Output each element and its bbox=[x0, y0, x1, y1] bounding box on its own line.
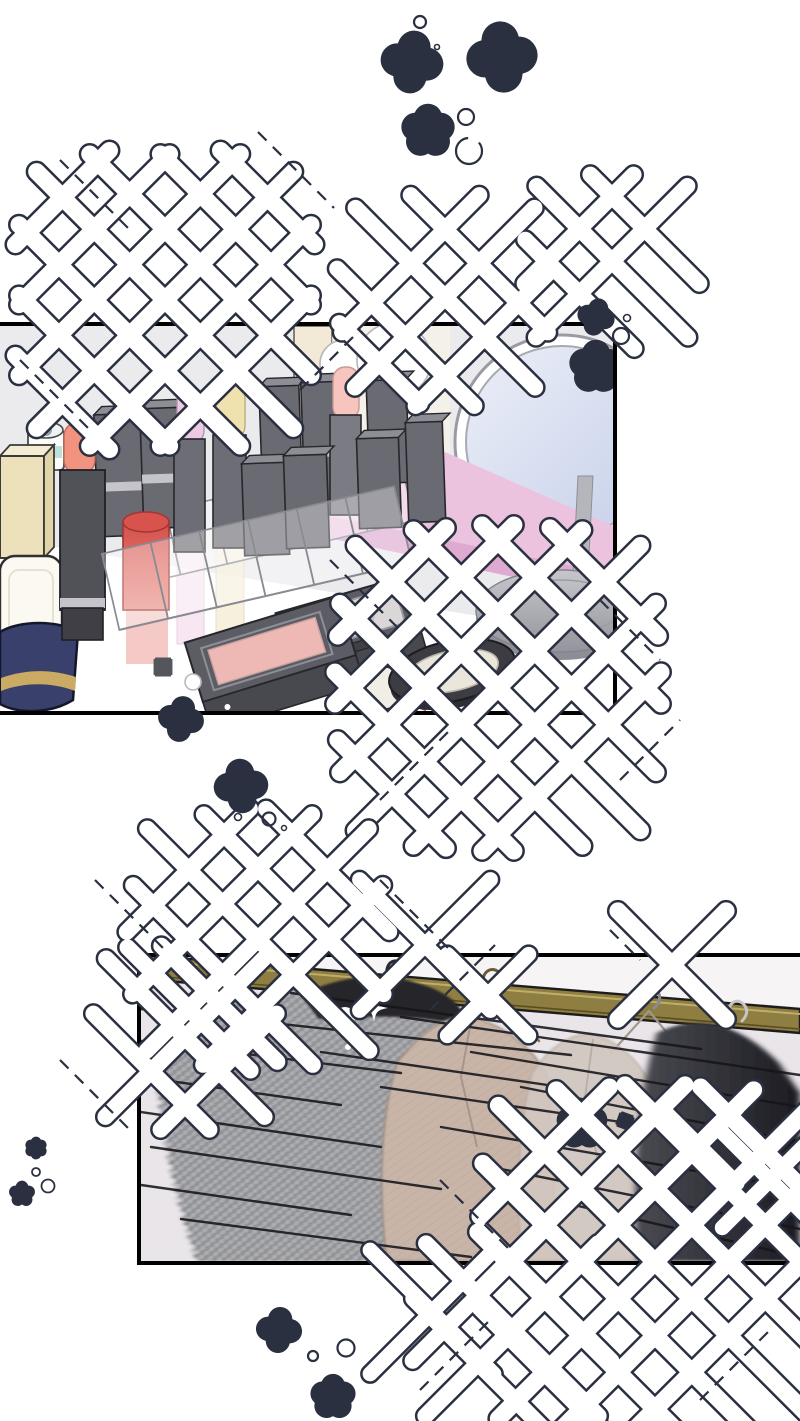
panel-vanity bbox=[0, 322, 617, 715]
vanity-scene bbox=[0, 326, 613, 711]
panel-closet bbox=[137, 953, 800, 1265]
pink-lipstick bbox=[174, 389, 205, 552]
perfume-box bbox=[0, 445, 54, 558]
comic-page bbox=[0, 0, 800, 1421]
closet-scene bbox=[141, 957, 800, 1261]
